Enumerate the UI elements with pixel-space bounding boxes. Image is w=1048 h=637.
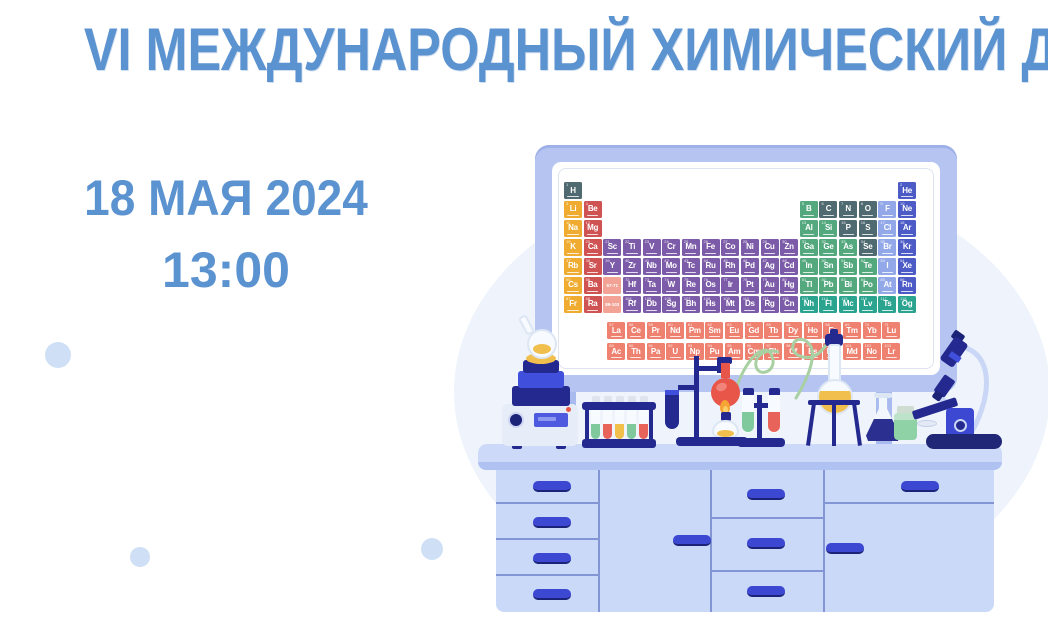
element-cell-Co: 27Co (721, 239, 739, 256)
element-cell-Xe: 54Xe (898, 258, 916, 275)
red-test-tube (768, 395, 780, 433)
element-cell-Ni: 28Ni (741, 239, 759, 256)
event-datetime: 18 МАЯ 2024 13:00 (56, 172, 396, 296)
clamped-test-tube (665, 390, 679, 429)
element-cell-Cu: 29Cu (761, 239, 779, 256)
decorative-dot (421, 538, 443, 560)
element-cell-Rf: 104Rf (623, 296, 641, 313)
lab-bench-counter-edge (478, 462, 1002, 470)
element-cell-H: 1H (564, 182, 582, 199)
element-cell-Os: 76Os (702, 277, 720, 294)
element-cell-Be: 4Be (584, 201, 602, 218)
element-cell-Lv: 116Lv (859, 296, 877, 313)
element-cell-Ca: 20Ca (584, 239, 602, 256)
event-date: 18 МАЯ 2024 (70, 172, 383, 224)
element-cell-Nb: 41Nb (643, 258, 661, 275)
page-title: VI МЕЖДУНАРОДНЫЙ ХИМИЧЕСКИЙ ДИКТАНТ (84, 16, 964, 84)
drawer-handle (826, 543, 864, 554)
element-cell-He: 2He (898, 182, 916, 199)
element-cell-La: 57La (607, 322, 625, 339)
element-cell-Md: 101Md (843, 343, 861, 360)
cabinet-divider (823, 470, 825, 612)
drawer-handle (533, 553, 571, 564)
element-cell-K: 19K (564, 239, 582, 256)
element-cell-No: 102No (863, 343, 881, 360)
element-cell-Te: 52Te (859, 258, 877, 275)
element-cell-N: 7N (839, 201, 857, 218)
drawer-handle (901, 481, 939, 492)
drawer-handle (533, 589, 571, 600)
element-cell-S: 16S (859, 220, 877, 237)
element-cell-Po: 84Po (859, 277, 877, 294)
element-cell-Lu: 71Lu (882, 322, 900, 339)
element-cell-Pa: 91Pa (647, 343, 665, 360)
element-cell-Se: 34Se (859, 239, 877, 256)
element-cell-Au: 79Au (761, 277, 779, 294)
element-cell-Ga: 31Ga (800, 239, 818, 256)
drawer-divider (825, 502, 994, 504)
petri-dish (917, 420, 937, 427)
flask-rim (874, 393, 892, 398)
element-cell-Y: 39Y (603, 258, 621, 275)
element-cell-group: 57-71 (603, 277, 621, 294)
element-cell-Sc: 21Sc (603, 239, 621, 256)
element-cell-Bi: 83Bi (839, 277, 857, 294)
element-cell-Zn: 30Zn (780, 239, 798, 256)
element-cell-B: 5B (800, 201, 818, 218)
green-test-tube (742, 395, 754, 433)
element-cell-Kr: 36Kr (898, 239, 916, 256)
drawer-divider (712, 570, 823, 572)
element-cell-Sr: 38Sr (584, 258, 602, 275)
element-cell-Nh: 113Nh (800, 296, 818, 313)
event-time: 13:00 (56, 244, 396, 296)
drawer-handle (533, 481, 571, 492)
element-cell-Sb: 51Sb (839, 258, 857, 275)
element-cell-As: 33As (839, 239, 857, 256)
element-cell-F: 9F (878, 201, 896, 218)
element-cell-Ac: 89Ac (607, 343, 625, 360)
element-cell-Ar: 18Ar (898, 220, 916, 237)
element-cell-Tc: 43Tc (682, 258, 700, 275)
element-cell-Ag: 47Ag (761, 258, 779, 275)
element-cell-Db: 105Db (643, 296, 661, 313)
element-cell-C: 6C (819, 201, 837, 218)
drawer-handle (747, 538, 785, 549)
element-cell-Bh: 107Bh (682, 296, 700, 313)
element-cell-Rh: 45Rh (721, 258, 739, 275)
element-cell-Rg: 111Rg (761, 296, 779, 313)
element-cell-Br: 35Br (878, 239, 896, 256)
focus-knob (954, 419, 967, 432)
element-cell-Fl: 114Fl (819, 296, 837, 313)
element-cell-Ba: 56Ba (584, 277, 602, 294)
element-cell-Ce: 58Ce (627, 322, 645, 339)
element-cell-Tm: 69Tm (843, 322, 861, 339)
element-cell-Mg: 12Mg (584, 220, 602, 237)
microscope-base (926, 434, 1002, 449)
element-cell-Mt: 109Mt (721, 296, 739, 313)
element-cell-P: 15P (839, 220, 857, 237)
element-cell-In: 49In (800, 258, 818, 275)
element-cell-Ne: 10Ne (898, 201, 916, 218)
element-cell-Pd: 46Pd (741, 258, 759, 275)
element-cell-group: 89-103 (603, 296, 621, 313)
element-cell-W: 74W (662, 277, 680, 294)
element-cell-Li: 3Li (564, 201, 582, 218)
drawer-divider (712, 517, 823, 519)
element-cell-Og: 118Og (898, 296, 916, 313)
element-cell-Cd: 48Cd (780, 258, 798, 275)
element-cell-Pt: 78Pt (741, 277, 759, 294)
element-cell-V: 23V (643, 239, 661, 256)
element-cell-Pm: 61Pm (686, 322, 704, 339)
cabinet-divider (598, 470, 600, 612)
element-cell-Ge: 32Ge (819, 239, 837, 256)
element-cell-O: 8O (859, 201, 877, 218)
element-cell-At: 85At (878, 277, 896, 294)
element-cell-Hs: 108Hs (702, 296, 720, 313)
decorative-dot (45, 342, 71, 368)
element-cell-Th: 90Th (627, 343, 645, 360)
drawer-divider (496, 574, 598, 576)
element-cell-Ir: 77Ir (721, 277, 739, 294)
drawer-handle (533, 517, 571, 528)
element-cell-Ti: 22Ti (623, 239, 641, 256)
element-cell-Al: 13Al (800, 220, 818, 237)
element-cell-Ra: 88Ra (584, 296, 602, 313)
element-cell-Mc: 115Mc (839, 296, 857, 313)
element-cell-Zr: 40Zr (623, 258, 641, 275)
element-cell-Sm: 62Sm (705, 322, 723, 339)
element-cell-Nd: 60Nd (666, 322, 684, 339)
drawer-handle (673, 535, 711, 546)
element-cell-Re: 75Re (682, 277, 700, 294)
element-cell-I: 53I (878, 258, 896, 275)
element-cell-Ru: 44Ru (702, 258, 720, 275)
element-cell-Pr: 59Pr (647, 322, 665, 339)
element-cell-Fr: 87Fr (564, 296, 582, 313)
poster-page: VI МЕЖДУНАРОДНЫЙ ХИМИЧЕСКИЙ ДИКТАНТ 18 М… (0, 0, 1048, 637)
element-cell-Cs: 55Cs (564, 277, 582, 294)
element-cell-Hg: 80Hg (780, 277, 798, 294)
element-cell-Sg: 106Sg (662, 296, 680, 313)
element-cell-Rb: 37Rb (564, 258, 582, 275)
element-cell-Rn: 86Rn (898, 277, 916, 294)
element-cell-Cr: 24Cr (662, 239, 680, 256)
element-cell-Yb: 70Yb (863, 322, 881, 339)
element-cell-Mo: 42Mo (662, 258, 680, 275)
drawer-handle (747, 489, 785, 500)
element-cell-Si: 14Si (819, 220, 837, 237)
decorative-dot (130, 547, 150, 567)
drawer-divider (496, 538, 598, 540)
element-cell-Na: 11Na (564, 220, 582, 237)
element-cell-Fe: 26Fe (702, 239, 720, 256)
element-cell-Cn: 112Cn (780, 296, 798, 313)
drawer-divider (496, 502, 598, 504)
element-cell-Mn: 25Mn (682, 239, 700, 256)
drawer-handle (747, 586, 785, 597)
element-cell-Pb: 82Pb (819, 277, 837, 294)
element-cell-Ds: 110Ds (741, 296, 759, 313)
element-cell-Cl: 17Cl (878, 220, 896, 237)
element-cell-U: 92U (666, 343, 684, 360)
element-cell-Ta: 73Ta (643, 277, 661, 294)
element-cell-Hf: 72Hf (623, 277, 641, 294)
element-cell-Ts: 117Ts (878, 296, 896, 313)
element-cell-Sn: 50Sn (819, 258, 837, 275)
element-cell-Lr: 103Lr (882, 343, 900, 360)
element-cell-Tl: 81Tl (800, 277, 818, 294)
